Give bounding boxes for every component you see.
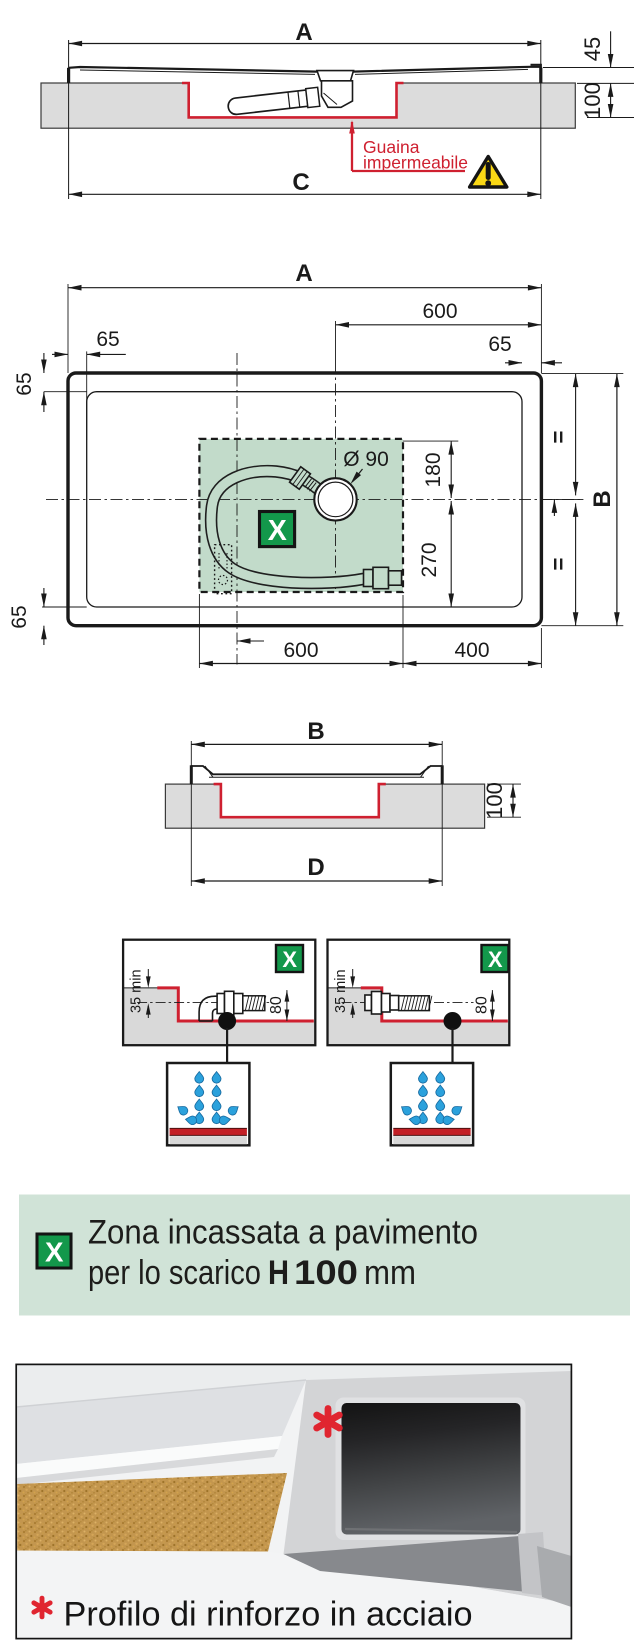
svg-text:65: 65 [13, 372, 36, 395]
svg-text:Profilo di rinforzo in acciaio: Profilo di rinforzo in acciaio [64, 1595, 473, 1633]
svg-text:400: 400 [454, 639, 489, 662]
svg-text:H: H [268, 1254, 289, 1292]
svg-text:180: 180 [422, 452, 445, 487]
svg-text:100: 100 [580, 82, 605, 119]
svg-text:B: B [589, 490, 616, 507]
svg-text:100: 100 [482, 782, 507, 819]
svg-text:Zona incassata a pavimento: Zona incassata a pavimento [88, 1214, 478, 1252]
svg-text:A: A [295, 19, 312, 46]
svg-text:=: = [546, 558, 571, 571]
svg-text:Ø 90: Ø 90 [343, 448, 389, 471]
svg-text:B: B [307, 718, 324, 745]
svg-text:80: 80 [473, 996, 490, 1014]
svg-text:270: 270 [418, 542, 441, 577]
svg-text:D: D [307, 854, 324, 881]
svg-text:mm: mm [364, 1254, 416, 1292]
svg-text:80: 80 [268, 996, 285, 1014]
svg-text:65: 65 [96, 328, 119, 351]
svg-text:=: = [546, 431, 571, 444]
svg-text:A: A [295, 260, 312, 287]
svg-text:600: 600 [283, 639, 318, 662]
svg-text:35 min: 35 min [129, 969, 145, 1013]
svg-text:100: 100 [294, 1254, 358, 1292]
svg-text:65: 65 [488, 333, 511, 356]
svg-text:45: 45 [580, 37, 605, 61]
svg-text:impermeabile: impermeabile [363, 153, 468, 173]
svg-text:C: C [292, 169, 309, 196]
svg-text:65: 65 [8, 605, 31, 628]
svg-text:600: 600 [422, 300, 457, 323]
svg-text:35 min: 35 min [333, 969, 349, 1013]
svg-text:per lo scarico: per lo scarico [88, 1254, 261, 1292]
